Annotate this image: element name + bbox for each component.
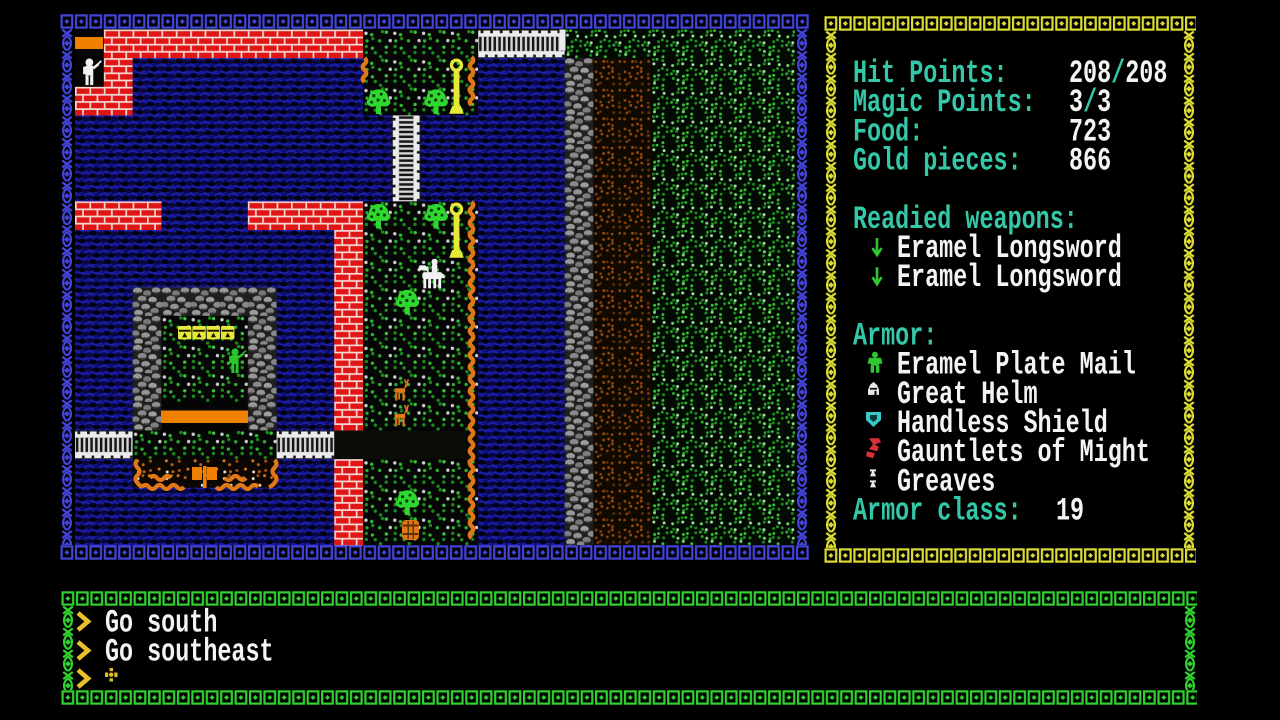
svg-text:Eramel Longsword: Eramel Longsword — [897, 261, 1122, 296]
svg-text:Go southeast: Go southeast — [105, 635, 274, 670]
svg-text:866: 866 — [1069, 144, 1111, 179]
svg-text:Armor class:: Armor class: — [853, 494, 1022, 529]
svg-text:19: 19 — [1056, 494, 1084, 529]
svg-text:Gold pieces:: Gold pieces: — [853, 144, 1022, 179]
